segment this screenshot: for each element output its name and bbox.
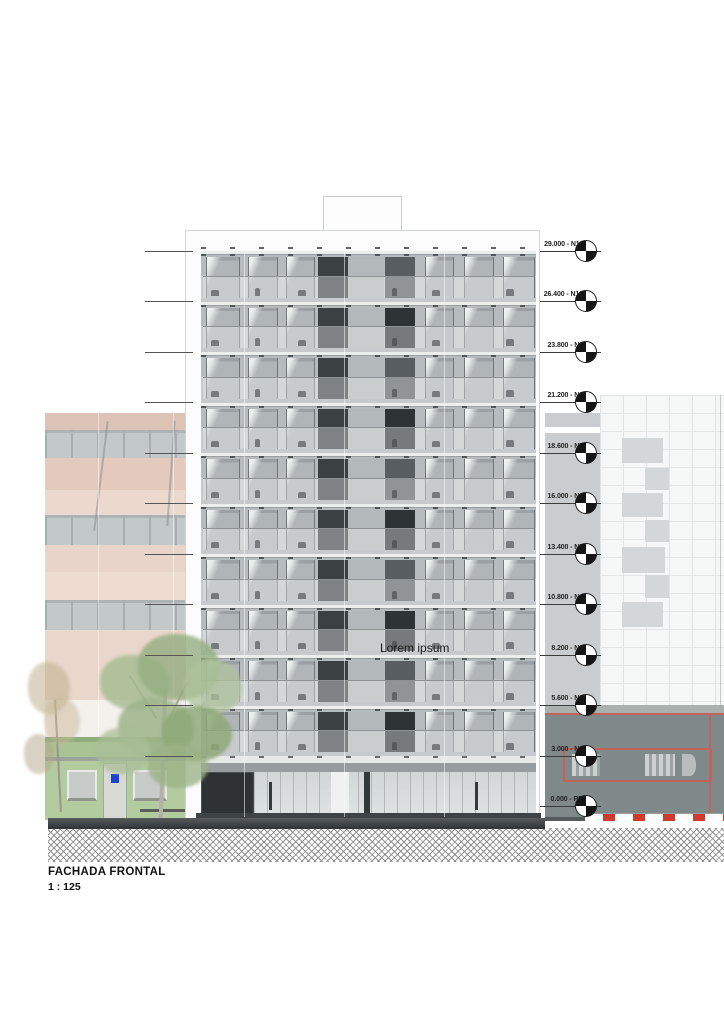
wall-gap <box>545 427 600 433</box>
main-tower <box>185 230 540 820</box>
balcony-furniture <box>392 288 397 296</box>
balcony-furniture <box>432 391 440 397</box>
facade-panel <box>645 520 669 542</box>
balcony-furniture <box>255 389 260 397</box>
tower-floor <box>201 504 536 555</box>
storefront-mullion <box>364 772 370 815</box>
balcony-furniture <box>298 391 306 397</box>
control-line <box>244 233 245 817</box>
balcony-furniture <box>392 490 397 498</box>
balcony-furniture <box>211 593 219 599</box>
glass-balustrade <box>203 579 535 601</box>
facade-band <box>45 630 193 700</box>
balcony-furniture <box>211 290 219 296</box>
level-line <box>540 402 601 403</box>
glass-balustrade <box>203 276 535 298</box>
balcony-furniture <box>506 642 514 649</box>
tower-entry-door <box>201 772 254 815</box>
balcony-furniture <box>298 492 306 498</box>
house-roof-edge <box>45 737 193 742</box>
balcony-furniture <box>211 441 219 447</box>
glass-balustrade <box>203 730 535 752</box>
level-label: 26.400 - N10 <box>537 291 583 298</box>
balcony-furniture <box>298 441 306 447</box>
facade-panel <box>645 468 669 490</box>
window-band <box>45 600 193 630</box>
window-band <box>45 515 193 545</box>
facade-band <box>45 490 193 515</box>
balcony-furniture <box>506 390 514 397</box>
balcony-furniture <box>432 441 440 447</box>
door-plaque <box>111 774 119 783</box>
tower-floor <box>201 706 536 757</box>
balcony-furniture <box>298 643 306 649</box>
house-cornice <box>45 757 193 761</box>
red-white-curb <box>585 813 724 821</box>
tower-floor <box>201 251 536 302</box>
window-slats <box>645 754 675 776</box>
glass-balustrade <box>203 427 535 449</box>
tower-floor <box>201 605 536 656</box>
glass-balustrade <box>203 326 535 348</box>
neighbor-building-left <box>45 413 193 763</box>
facade-panel <box>622 547 665 573</box>
storefront-pier <box>331 772 349 815</box>
control-line <box>720 395 721 705</box>
balcony-furniture <box>392 591 397 599</box>
red-outline-window-band <box>563 748 712 782</box>
balcony-furniture <box>211 744 219 750</box>
house-window <box>133 770 167 801</box>
control-line <box>98 413 99 763</box>
balcony-furniture <box>506 339 514 346</box>
balcony-furniture <box>211 643 219 649</box>
balcony-furniture <box>432 694 440 700</box>
balcony-furniture <box>392 540 397 548</box>
glass-balustrade <box>203 377 535 399</box>
facade-panel <box>622 602 663 627</box>
neighbor-base-building <box>545 705 724 818</box>
balcony-furniture <box>211 340 219 346</box>
control-line <box>173 413 174 763</box>
balcony-furniture <box>298 542 306 548</box>
parapet-detail <box>201 247 536 249</box>
balcony-furniture <box>298 744 306 750</box>
facade-note: Lorem ipsum <box>380 641 449 655</box>
balcony-furniture <box>255 641 260 649</box>
level-label: 23.800 - N9 <box>537 342 583 349</box>
balcony-furniture <box>506 541 514 548</box>
house-door <box>103 763 127 820</box>
balcony-furniture <box>211 694 219 700</box>
tower-floor <box>201 403 536 454</box>
balcony-furniture <box>255 338 260 346</box>
door-handle <box>475 782 478 810</box>
tower-floor <box>201 352 536 403</box>
house-window <box>67 770 97 801</box>
balcony-furniture <box>506 440 514 447</box>
party-wall-strip <box>545 413 600 705</box>
balcony-furniture <box>392 389 397 397</box>
glass-balustrade <box>203 680 535 702</box>
tower-floor <box>201 302 536 353</box>
tower-floor <box>201 453 536 504</box>
balcony-furniture <box>432 340 440 346</box>
balcony-furniture <box>255 439 260 447</box>
facade-panel <box>645 575 669 598</box>
balcony-furniture <box>211 391 219 397</box>
facade-band <box>45 572 193 600</box>
tower-floor <box>201 554 536 605</box>
ground-floor-soffit <box>201 763 536 772</box>
drawing-scale: 1 : 125 <box>48 881 81 893</box>
base-top-band <box>545 705 724 713</box>
level-datum-icon <box>575 240 597 262</box>
storefront-glazing <box>254 772 536 815</box>
balcony-furniture <box>506 592 514 599</box>
door-handle <box>269 782 272 810</box>
control-line <box>444 233 445 817</box>
level-line <box>540 251 601 252</box>
balcony-furniture <box>255 288 260 296</box>
level-datum-icon <box>575 391 597 413</box>
level-line <box>540 352 601 353</box>
balcony-furniture <box>255 540 260 548</box>
elevation-drawing-sheet: 29.000 - N1126.400 - N1023.800 - N921.20… <box>0 0 724 1024</box>
balcony-furniture <box>392 692 397 700</box>
facade-band <box>45 545 193 572</box>
balcony-furniture <box>506 743 514 750</box>
balcony-furniture <box>506 693 514 700</box>
balcony-furniture <box>211 542 219 548</box>
control-line <box>344 233 345 817</box>
glass-balustrade <box>203 478 535 500</box>
balcony-furniture <box>211 492 219 498</box>
ground-floor-slab <box>201 756 536 763</box>
facade-panel <box>622 493 663 517</box>
facade-band <box>45 413 193 430</box>
ground-hatch <box>48 828 724 862</box>
level-datum-icon <box>575 290 597 312</box>
balcony-furniture <box>392 742 397 750</box>
balcony-furniture <box>432 542 440 548</box>
balcony-furniture <box>506 289 514 296</box>
tower-floors <box>201 251 536 756</box>
balcony-furniture <box>255 490 260 498</box>
balcony-furniture <box>432 290 440 296</box>
rooftop-penthouse <box>323 196 402 232</box>
balcony-furniture <box>298 340 306 346</box>
balcony-furniture <box>298 290 306 296</box>
balcony-furniture <box>432 593 440 599</box>
balcony-furniture <box>432 492 440 498</box>
facade-panel <box>622 438 663 463</box>
balcony-furniture <box>432 744 440 750</box>
window-slats <box>572 754 600 776</box>
glass-balustrade <box>203 629 535 651</box>
tower-floor <box>201 655 536 706</box>
neighbor-house-green <box>45 737 193 820</box>
balcony-furniture <box>506 491 514 498</box>
level-line <box>540 301 601 302</box>
red-outline-line <box>545 713 724 715</box>
balcony-furniture <box>255 692 260 700</box>
balcony-furniture <box>392 439 397 447</box>
level-label: 29.000 - N11 <box>537 241 583 248</box>
window-figure <box>682 754 696 776</box>
balcony-furniture <box>255 742 260 750</box>
balcony-furniture <box>255 591 260 599</box>
balcony-furniture <box>298 694 306 700</box>
glass-balustrade <box>203 528 535 550</box>
balcony-furniture <box>392 338 397 346</box>
level-datum-icon <box>575 341 597 363</box>
level-label: 21.200 - N8 <box>537 392 583 399</box>
balcony-furniture <box>298 593 306 599</box>
street-line <box>48 818 545 829</box>
drawing-title: FACHADA FRONTAL <box>48 866 166 878</box>
